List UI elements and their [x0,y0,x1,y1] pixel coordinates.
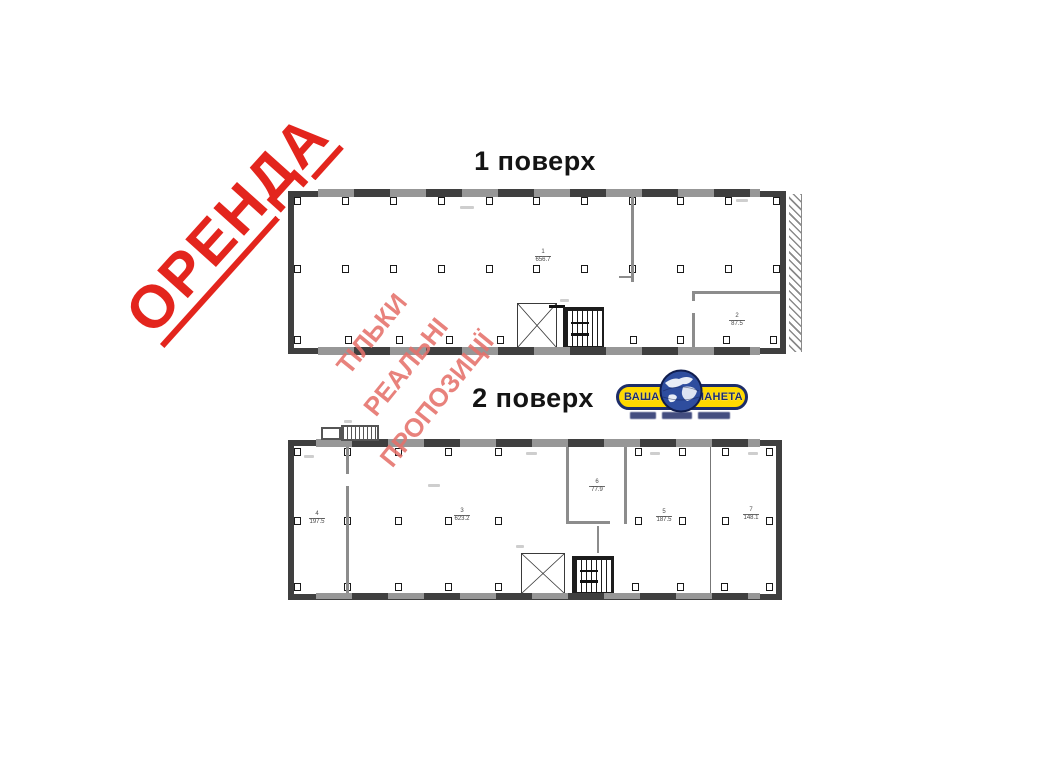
column-post [495,583,502,591]
logo-tagline-blur [662,412,692,419]
dimension-mark [560,299,569,302]
column-post [677,265,684,273]
floor2-exterior-landing [321,427,341,440]
column-post [395,583,402,591]
column-post [635,448,642,456]
column-post [533,197,540,205]
column-post [635,517,642,525]
vasha-planeta-logo: ВАША ПЛАНЕТА [612,368,752,423]
floor1-door-leaf [619,276,631,278]
floor1-columns-bottom-right [630,336,777,344]
column-post [533,265,540,273]
column-post [725,197,732,205]
room-area: 197.5 [302,519,332,526]
column-post [486,265,493,273]
room6-left-wall [566,446,569,524]
column-post [294,336,301,344]
column-post [677,197,684,205]
stair-direction-arrow [571,333,589,336]
dimension-mark [748,452,758,455]
column-post [445,583,452,591]
elevator-shaft-x-icon [522,554,564,593]
floor1-columns-top [294,197,780,205]
room-area: 623.2 [447,516,477,523]
floor2-staircase [572,556,614,594]
column-post [581,265,588,273]
column-post [770,336,777,344]
floor2-columns-bottom-right [632,583,773,591]
room6-stub-wall [597,526,599,553]
room-number: 2 [729,313,745,321]
room6-bottom-wall [566,521,610,524]
floor1-top-windows [318,189,760,197]
floor2-elevator-shaft [521,553,565,594]
room-label-5: 5 187.5 [649,509,679,524]
room-area: 87.5 [722,321,752,328]
room-label-2: 2 87.5 [722,313,752,328]
floor1-side-hatching [789,194,802,352]
rental-listing-image: ОРЕНДА ТІЛЬКИ РЕАЛЬНІ ПРОПОЗИЦІЇ 1 повер… [0,0,1047,771]
floor2-columns-bottom-left [294,583,502,591]
floor2-exterior-staircase [341,425,379,441]
room-label-3: 3 623.2 [447,508,477,523]
floor1-staircase [563,307,604,348]
room2-left-wall-lower [692,313,695,348]
room-number: 3 [454,508,470,516]
column-post [342,197,349,205]
column-post [390,265,397,273]
column-post [294,265,301,273]
floor2-left-partition-upper [346,446,349,474]
column-post [766,517,773,525]
floor2-plan: 4 197.5 3 623.2 6 77.9 5 187.5 7 148.1 [288,440,782,600]
dimension-mark [650,452,660,455]
stair-direction-arrow [580,570,598,573]
column-post [725,265,732,273]
room-area: 148.1 [736,515,766,522]
column-post [773,197,780,205]
room-number: 1 [535,249,551,257]
logo-tagline-blur [698,412,730,419]
logo-word-left: ВАША [624,391,660,403]
column-post [294,517,301,525]
room-area: 77.9 [582,487,612,494]
column-post [438,197,445,205]
column-post [495,448,502,456]
dimension-mark [526,452,537,455]
dimension-mark [460,206,474,209]
room-number: 5 [656,509,672,517]
room-number: 4 [309,511,325,519]
globe-icon [659,369,703,413]
column-post [486,197,493,205]
column-post [390,197,397,205]
floor1-bottom-windows [318,347,760,355]
elevator-shaft-x-icon [518,304,556,347]
column-post [630,336,637,344]
column-post [679,517,686,525]
floor2-thin-divider [710,446,711,594]
floor2-left-partition-lower [346,486,349,594]
room6-right-wall [624,446,627,524]
dimension-mark [736,199,748,202]
room-label-1: 1 656.7 [528,249,558,264]
floor2-title: 2 поверх [448,383,618,414]
room-label-4: 4 197.5 [302,511,332,526]
column-post [677,583,684,591]
column-post [766,583,773,591]
column-post [722,517,729,525]
dimension-mark [304,455,314,458]
room-label-6: 6 77.9 [582,479,612,494]
column-post [766,448,773,456]
floor1-title: 1 поверх [450,146,620,177]
dimension-mark [516,545,524,548]
room-number: 7 [743,507,759,515]
column-post [722,448,729,456]
column-post [679,448,686,456]
column-post [677,336,684,344]
column-post [721,583,728,591]
column-post [495,517,502,525]
room2-left-wall-upper [692,291,695,301]
column-post [396,336,403,344]
column-post [723,336,730,344]
column-post [395,517,402,525]
logo-tagline-blur [630,412,656,419]
floor2-bottom-windows [316,593,760,599]
floor1-columns-middle [294,265,780,273]
room2-top-wall [692,291,780,294]
dimension-mark [428,484,440,487]
column-post [773,265,780,273]
stair-direction-arrow [571,322,589,325]
column-post [294,448,301,456]
room-label-7: 7 148.1 [736,507,766,522]
room-area: 187.5 [649,517,679,524]
room-area: 656.7 [528,257,558,264]
column-post [445,448,452,456]
column-post [342,265,349,273]
column-post [438,265,445,273]
floor1-partition-wall [631,197,634,282]
dimension-mark [344,420,352,423]
column-post [497,336,504,344]
room-number: 6 [589,479,605,487]
column-post [294,583,301,591]
floor1-elevator-shaft [517,303,557,348]
column-post [632,583,639,591]
column-post [581,197,588,205]
stair-direction-arrow [580,580,598,583]
